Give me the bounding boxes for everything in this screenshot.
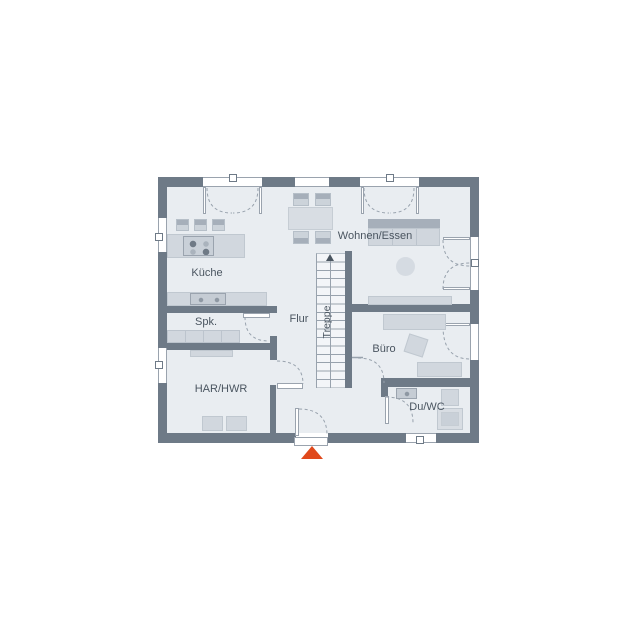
room-label-spk: Spk.: [195, 316, 217, 328]
kitchen-stool: [212, 219, 225, 231]
dining-chair: [293, 231, 309, 244]
room-label-treppe: Treppe: [321, 306, 333, 339]
stairs-direction-arrow-icon: [326, 254, 334, 261]
door-arc: [390, 188, 414, 213]
dining-table: [288, 207, 333, 230]
kitchen-sink-icon: [190, 293, 226, 305]
dryer: [226, 416, 247, 431]
dining-chair: [315, 193, 331, 206]
door-arc: [443, 263, 470, 289]
door-arc: [245, 317, 269, 341]
room-label-wohnen-essen: Wohnen/Essen: [338, 230, 412, 242]
desk: [383, 314, 446, 330]
door-arc: [207, 188, 232, 213]
sideboard: [368, 296, 452, 305]
sofa-back: [368, 219, 440, 228]
kitchen-stool: [194, 219, 207, 231]
dining-chair: [315, 231, 331, 244]
stove-icon: [183, 236, 214, 256]
door-arc: [443, 240, 470, 266]
bathroom-sink-icon: [396, 388, 417, 399]
room-label-flur: Flur: [290, 313, 309, 325]
door-arc: [277, 361, 303, 384]
har-counter: [190, 350, 233, 357]
dining-chair: [293, 193, 309, 206]
floor-plan: Küche Spk. Flur HAR/HWR Treppe Wohnen/Es…: [0, 0, 636, 636]
room-label-har-hwr: HAR/HWR: [195, 383, 248, 395]
door-arc: [364, 188, 389, 213]
kitchen-stool: [176, 219, 189, 231]
round-rug: [396, 257, 415, 276]
washer: [202, 416, 223, 431]
entrance-arrow-icon: [301, 446, 323, 459]
room-label-buero: Büro: [372, 343, 395, 355]
office-cabinet: [417, 362, 462, 377]
pantry-shelf: [167, 330, 240, 343]
door-arc: [358, 358, 384, 383]
room-label-kueche: Küche: [191, 267, 222, 279]
room-label-du-wc: Du/WC: [409, 401, 444, 413]
shower-inner: [441, 412, 459, 426]
door-arc: [233, 188, 258, 213]
door-arc: [299, 409, 327, 435]
door-arc: [443, 326, 470, 359]
